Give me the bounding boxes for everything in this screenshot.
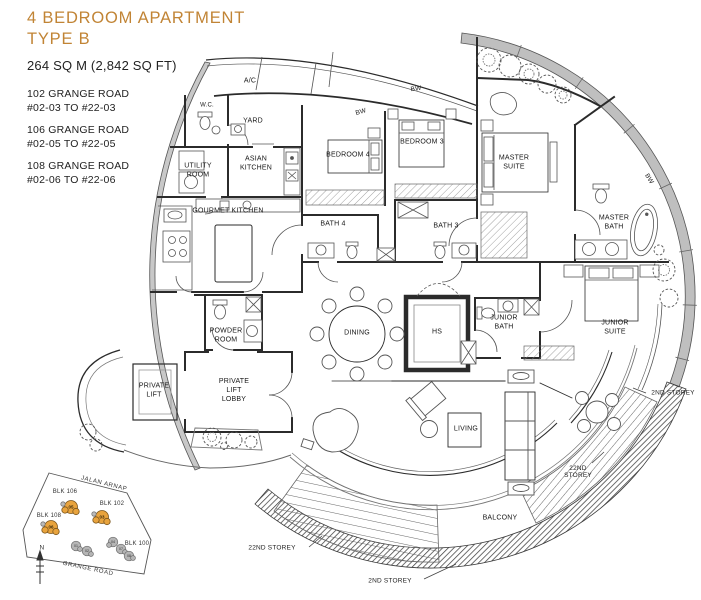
site-block-100: BLK 100 [125,541,149,547]
address-block: 102 GRANGE ROAD #02-03 TO #22-03 [27,88,129,115]
page-title-line1: 4 BEDROOM APARTMENT [27,9,245,28]
floor-plan-page: 4 BEDROOM APARTMENT TYPE B 264 SQ M (2,8… [0,0,701,600]
room-label-private-lift-lobby: PRIVATE LIFT LOBBY [217,378,251,404]
storey-22nd-label: 22ND STOREY [558,465,598,479]
address-road: 108 GRANGE ROAD [27,160,129,174]
site-block-106: BLK 106 [53,489,77,495]
room-label-junior-bath: JUNIOR BATH [486,314,522,332]
address-units: #02-03 TO #22-03 [27,102,129,116]
site-compass-label: N [40,545,45,552]
site-unit-other: 02 [85,549,89,553]
site-unit-other: 07 [119,547,123,551]
room-label-private-lift: PRIVATE LIFT [137,382,171,400]
room-label-bath4: BATH 4 [311,221,355,230]
room-label-master-suite: MASTER SUITE [494,154,534,172]
room-label-living: LIVING [446,426,486,435]
site-unit-03: 03 [99,515,104,520]
storey-2nd-label: 2ND STOREY [368,578,411,585]
room-label-bedroom4: BEDROOM 4 [313,152,383,161]
site-unit-other: 04 [111,540,115,544]
room-label-yard: YARD [236,118,270,127]
room-label-dining: DINING [337,330,377,339]
site-unit-06: 06 [48,525,53,530]
room-label-bedroom3: BEDROOM 3 [387,139,457,148]
bath-fixtures [308,202,476,261]
room-label-balcony: BALCONY [470,515,530,524]
room-label-hs: HS [425,329,449,338]
room-label-ac: A/C [235,78,265,87]
room-label-junior-suite: JUNIOR SUITE [597,319,633,337]
address-road: 102 GRANGE ROAD [27,88,129,102]
room-label-master-bath: MASTER BATH [594,214,634,232]
site-unit-other: 08 [127,554,131,558]
site-unit-other: 01 [74,544,78,548]
room-label-utility: UTILITY ROOM [181,162,215,180]
address-block: 108 GRANGE ROAD #02-06 TO #22-06 [27,160,129,187]
room-label-gourmet-kitchen: GOURMET KITCHEN [173,208,283,217]
master-suite-furniture [481,92,557,205]
address-units: #02-06 TO #22-06 [27,174,129,188]
room-label-wc: W.C. [194,102,220,110]
living-furniture [301,370,535,495]
storey-2nd-label: 2ND STOREY [651,390,694,397]
household-shelter [406,284,468,371]
address-road: 106 GRANGE ROAD [27,124,129,138]
page-title-line2: TYPE B [27,30,91,49]
unit-area: 264 SQ M (2,842 SQ FT) [27,58,177,73]
room-label-asian-kitchen: ASIAN KITCHEN [236,155,276,173]
room-label-bath3: BATH 3 [424,223,468,232]
top-bands [206,52,478,124]
address-units: #02-05 TO #22-05 [27,138,129,152]
address-block: 106 GRANGE ROAD #02-05 TO #22-05 [27,124,129,151]
trellis-fan [274,465,439,562]
site-block-108: BLK 108 [37,513,61,519]
site-block-102: BLK 102 [100,501,124,507]
room-label-powder-room: POWDER ROOM [206,327,246,345]
bay-window-label: BW [410,85,422,93]
storey-22nd-label: 22ND STOREY [248,545,295,552]
compass [36,551,44,584]
site-unit-05: 05 [68,505,73,510]
